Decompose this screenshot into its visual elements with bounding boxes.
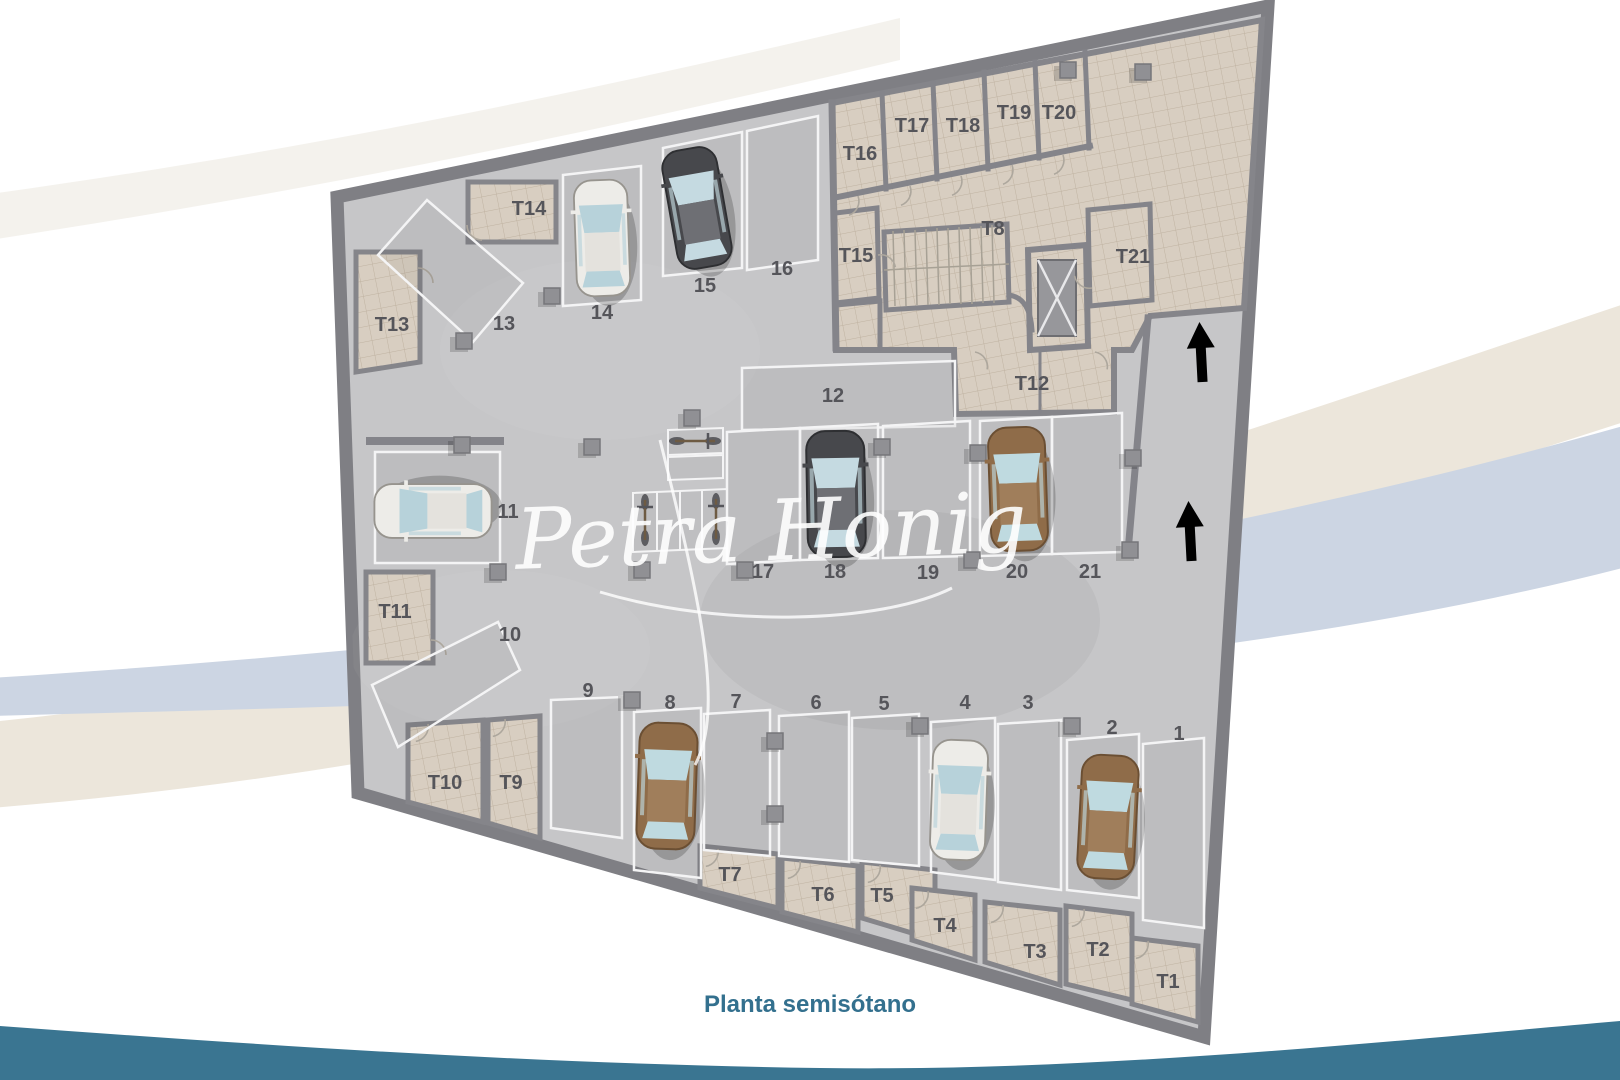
storage-room-t20-label: T20 <box>1042 102 1076 124</box>
bay-3 <box>998 720 1061 890</box>
storage-room-t13-label: T13 <box>375 314 409 336</box>
parking-space-7-label: 7 <box>730 691 741 713</box>
parking-space-15-label: 15 <box>694 275 716 297</box>
bay-9 <box>551 697 622 838</box>
bay-12 <box>742 361 955 430</box>
floorplan-page: 1 2 3 4 5 6 7 8 9 10 11 12 13 14 15 16 1… <box>0 0 1620 1080</box>
storage-room-t5-label: T5 <box>870 885 893 907</box>
parking-space-6-label: 6 <box>810 692 821 714</box>
parking-space-16-label: 16 <box>771 258 793 280</box>
parking-space-9-label: 9 <box>582 680 593 702</box>
floor-caption: Planta semisótano <box>704 991 916 1018</box>
parking-space-4-label: 4 <box>959 692 971 714</box>
storage-room-t7-label: T7 <box>718 864 741 886</box>
storage-room-t12-label: T12 <box>1015 373 1049 395</box>
storage-room-t8-label: T8 <box>981 218 1004 240</box>
storage-room-t14-label: T14 <box>512 198 547 220</box>
parking-space-1-label: 1 <box>1173 723 1184 745</box>
car-space-11 <box>374 476 501 542</box>
parking-space-10-label: 10 <box>499 624 521 646</box>
parking-space-3-label: 3 <box>1022 692 1033 714</box>
storage-room-t16-label: T16 <box>843 143 877 165</box>
storage-room-t2-label: T2 <box>1086 939 1109 961</box>
storage-room-t4-label: T4 <box>933 915 957 937</box>
parking-space-8-label: 8 <box>664 692 675 714</box>
bay-16 <box>747 116 818 270</box>
parking-space-21-label: 21 <box>1079 561 1101 583</box>
storage-room-t11-label: T11 <box>378 601 411 623</box>
storage-room-t21-label: T21 <box>1116 246 1150 268</box>
storage-room-t6-label: T6 <box>811 884 834 906</box>
parking-space-2-label: 2 <box>1106 717 1117 739</box>
parking-space-12-label: 12 <box>822 385 844 407</box>
parking-space-13-label: 13 <box>493 313 515 335</box>
parking-space-5-label: 5 <box>878 693 889 715</box>
storage-room-t15-label: T15 <box>839 245 873 267</box>
bay-21 <box>1052 413 1122 554</box>
storage-room-t9-label: T9 <box>499 772 522 794</box>
storage-room-t18-label: T18 <box>946 115 980 137</box>
bay-1 <box>1143 738 1204 928</box>
parking-space-14-label: 14 <box>591 302 614 324</box>
storage-room-t1-label: T1 <box>1156 971 1179 993</box>
floorplan-image: 1 2 3 4 5 6 7 8 9 10 11 12 13 14 15 16 1… <box>0 0 1620 1080</box>
bay-6 <box>779 712 849 862</box>
storage-room-t19-label: T19 <box>997 102 1031 124</box>
watermark-text: Petra Honig <box>512 473 1029 589</box>
storage-room-t17-label: T17 <box>895 115 929 137</box>
bay-7 <box>704 710 770 856</box>
storage-room-t10-label: T10 <box>428 772 462 794</box>
storage-room-t3-label: T3 <box>1023 941 1046 963</box>
room-t10 <box>408 720 483 822</box>
